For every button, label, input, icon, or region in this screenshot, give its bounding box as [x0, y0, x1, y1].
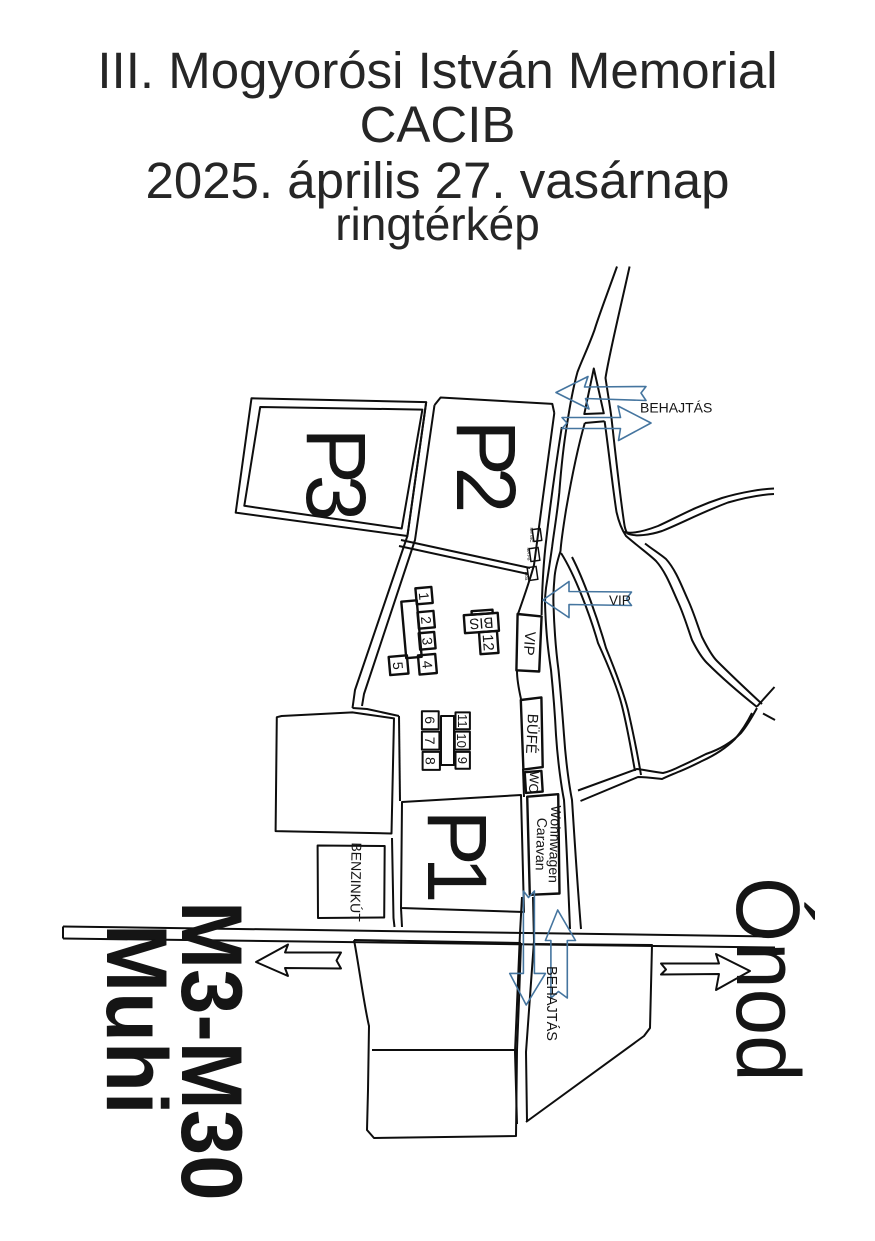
svg-text:MA Fé: MA Fé: [526, 547, 531, 561]
svg-text:1: 1: [416, 592, 433, 601]
svg-text:11: 11: [455, 714, 470, 728]
svg-text:12: 12: [479, 634, 497, 652]
svg-text:VIP: VIP: [609, 593, 631, 608]
svg-text:BEHAJTÁS: BEHAJTÁS: [640, 400, 712, 416]
svg-text:P2: P2: [439, 420, 533, 510]
svg-text:BÜFÉ: BÜFÉ: [522, 713, 542, 754]
svg-text:Mé WC: Mé WC: [529, 528, 534, 544]
svg-text:5: 5: [390, 661, 407, 670]
svg-text:3: 3: [419, 637, 436, 646]
svg-text:BEHAJTÁS: BEHAJTÁS: [543, 966, 560, 1041]
svg-text:BENZINKÚT: BENZINKÚT: [347, 842, 364, 922]
svg-text:VIP: VIP: [519, 631, 538, 657]
svg-text:Muhi: Muhi: [89, 924, 185, 1115]
svg-text:4: 4: [419, 660, 436, 669]
svg-text:6: 6: [422, 716, 438, 724]
svg-text:8: 8: [423, 757, 439, 765]
svg-text:BIS: BIS: [469, 613, 494, 632]
svg-text:P1: P1: [410, 810, 504, 900]
svg-text:9: 9: [455, 757, 470, 764]
svg-text:2: 2: [418, 616, 435, 625]
svg-text:P3: P3: [289, 428, 383, 519]
svg-text:7: 7: [422, 737, 438, 745]
svg-text:WC: WC: [526, 771, 542, 793]
svg-text:moa: moa: [524, 572, 529, 581]
svg-text:10: 10: [454, 733, 469, 747]
svg-text:Caravan: Caravan: [533, 817, 551, 870]
svg-text:Ónod: Ónod: [717, 877, 817, 1082]
